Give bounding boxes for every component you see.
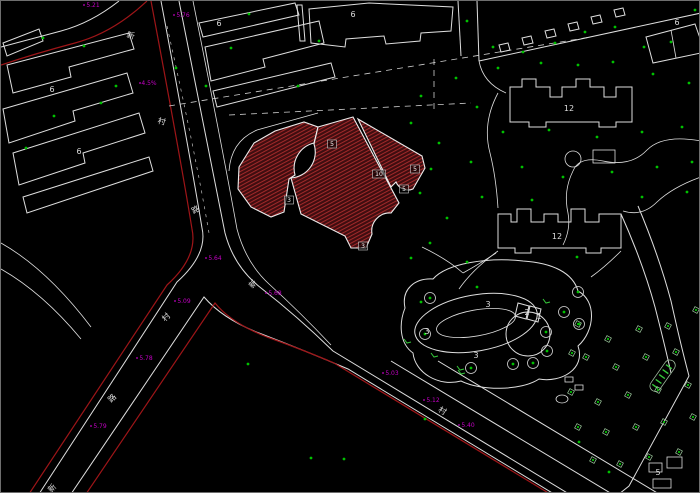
- plant-mark: [457, 366, 464, 370]
- building-row: [205, 21, 324, 81]
- building-row-notched: [309, 3, 453, 47]
- building-number: 6: [76, 147, 81, 156]
- tree-dot: [230, 47, 233, 50]
- tree-grid-symbols: [568, 307, 700, 468]
- tree-dot: [318, 40, 321, 43]
- elevation-label: 5.09: [177, 298, 191, 305]
- tree-dot: [545, 331, 548, 334]
- building-row: [3, 29, 43, 56]
- tree-dot: [678, 451, 680, 453]
- tree-dot: [410, 122, 413, 125]
- tree-dot: [577, 323, 579, 325]
- road-name-char: 村: [160, 311, 173, 324]
- tree-dot: [470, 161, 473, 164]
- shrub: [556, 395, 568, 403]
- footpath: [459, 251, 498, 289]
- block-boundary: [477, 1, 479, 61]
- tree-dot: [675, 351, 677, 353]
- building-divider: [671, 30, 676, 58]
- small-building: [591, 15, 602, 24]
- spot-elevation-dot: [90, 425, 92, 427]
- ring-road-curve: [638, 206, 689, 376]
- tree-dot: [492, 46, 495, 49]
- tree-dot: [205, 85, 208, 88]
- small-structure: [653, 479, 671, 488]
- tree-dot: [429, 242, 432, 245]
- footpath: [479, 61, 506, 93]
- tree-dot: [248, 13, 251, 16]
- tree-dot: [576, 256, 579, 259]
- tree-dot: [42, 37, 45, 40]
- building-cluster-north: [199, 3, 453, 107]
- tree-dot: [512, 363, 515, 366]
- building-12-south: [498, 209, 621, 253]
- tree-dot: [652, 73, 655, 76]
- footpath: [563, 171, 573, 245]
- tree-dot: [597, 401, 599, 403]
- tree-dot: [695, 309, 697, 311]
- tree-dot: [410, 257, 413, 260]
- tree-dot: [554, 42, 557, 45]
- boundary-dashed: [169, 37, 591, 106]
- tree-dot: [540, 62, 543, 65]
- tree-dot: [481, 196, 484, 199]
- tree-dot: [502, 131, 505, 134]
- tree-dot: [643, 46, 646, 49]
- site-number: 5: [402, 186, 406, 193]
- road-network: [1, 1, 659, 493]
- road-name-char: 新: [247, 278, 260, 291]
- tree-dot: [584, 31, 587, 34]
- tree-dot: [562, 176, 565, 179]
- elevation-label: 5.79: [93, 423, 107, 430]
- footpath: [591, 251, 621, 277]
- site-number: 3: [361, 243, 365, 250]
- tree-dot: [25, 147, 28, 150]
- tree-dot: [420, 301, 423, 304]
- tree-dot: [466, 20, 469, 23]
- tree-dot: [446, 217, 449, 220]
- elevation-label: 5.03: [385, 370, 399, 377]
- building-number: 1: [536, 312, 541, 321]
- tree-dot: [585, 356, 587, 358]
- elevation-label: 5.68: [268, 290, 282, 297]
- ring-road-curve: [621, 214, 671, 373]
- building-row: [3, 73, 133, 143]
- tree-dot: [577, 64, 580, 67]
- small-building: [568, 22, 579, 31]
- tree-dot: [470, 367, 473, 370]
- green-area-boundary: [619, 376, 689, 493]
- building-number: 6: [350, 10, 355, 19]
- tree-dot: [419, 192, 422, 195]
- building-number: 3: [473, 351, 478, 360]
- tree-dot: [476, 286, 479, 289]
- plant-mark: [543, 299, 550, 303]
- tree-dot: [614, 26, 617, 29]
- cad-site-plan-canvas[interactable]: 5105533 666661212333215 5.215.764.5%5.64…: [0, 0, 700, 493]
- footpath: [487, 93, 498, 208]
- tree-dot: [667, 325, 669, 327]
- tree-dot: [343, 458, 346, 461]
- tree-dot: [476, 106, 479, 109]
- tree-dot: [641, 131, 644, 134]
- boundary-dashed: [229, 103, 471, 115]
- elevation-label: 4.5%: [141, 80, 157, 87]
- tree-dot: [638, 328, 640, 330]
- road-red-line: [1, 1, 147, 65]
- elevation-label: 5.12: [426, 397, 440, 404]
- elevation-label: 5.40: [461, 422, 475, 429]
- tree-dot: [297, 85, 300, 88]
- building-number: 12: [552, 232, 562, 241]
- building-number: 3: [485, 300, 490, 309]
- ring-building-outer: [410, 285, 542, 362]
- spot-elevation-dot: [83, 4, 85, 6]
- tree-dot: [691, 161, 694, 164]
- tree-dot: [466, 261, 469, 264]
- building-number: 6: [216, 19, 221, 28]
- elevation-label: 5.21: [86, 2, 100, 9]
- building-number: 3: [424, 327, 429, 336]
- tree-dot: [455, 77, 458, 80]
- tree-dot: [424, 418, 427, 421]
- building-number: 6: [49, 85, 54, 94]
- tree-dot: [521, 166, 524, 169]
- spot-elevation-dot: [136, 357, 138, 359]
- tree-dot: [546, 350, 549, 353]
- tree-dot: [607, 338, 609, 340]
- green-planting-label: [648, 358, 678, 394]
- small-building: [614, 8, 625, 17]
- road-name-char: 新: [126, 29, 136, 41]
- tree-dot: [577, 291, 580, 294]
- tree-dot: [681, 126, 684, 129]
- road-name-char: 路: [106, 392, 119, 405]
- tree-dot: [570, 391, 572, 393]
- road-name-char: 新: [46, 482, 59, 493]
- small-building: [499, 43, 510, 52]
- tree-dot: [692, 416, 694, 418]
- tree-dot: [605, 431, 607, 433]
- round-pavilion: [565, 151, 581, 167]
- tree-dot: [310, 457, 313, 460]
- building-row: [23, 157, 153, 213]
- spot-elevation-dot: [174, 300, 176, 302]
- tree-dot: [686, 191, 689, 194]
- tree-dot: [687, 384, 689, 386]
- tree-dot: [247, 363, 250, 366]
- building-row: [213, 63, 335, 107]
- tree-dot: [571, 352, 573, 354]
- small-structure: [667, 457, 682, 468]
- plant-mark: [404, 339, 411, 343]
- highlighted-site-buildings: [229, 113, 425, 248]
- spot-elevation-dot: [205, 257, 207, 259]
- tree-dot: [100, 102, 103, 105]
- spot-elevation-dot: [265, 292, 267, 294]
- site-boundary: [401, 260, 591, 388]
- road-edge: [71, 297, 554, 493]
- site-number: 10: [375, 171, 383, 178]
- path-curve: [1, 243, 91, 327]
- tree-dot: [656, 166, 659, 169]
- tree-dot: [688, 82, 691, 85]
- tree-dot: [641, 196, 644, 199]
- building-12-north: [510, 79, 632, 127]
- spot-elevation-dot: [382, 372, 384, 374]
- block-boundary: [479, 13, 700, 61]
- tree-dot: [53, 115, 56, 118]
- ring-building-inner: [434, 303, 517, 342]
- small-building: [545, 29, 556, 38]
- footpath: [623, 177, 700, 213]
- tree-dot: [430, 168, 433, 171]
- road-red-line: [29, 1, 193, 493]
- tree-dot: [563, 311, 566, 314]
- elevation-label: 5.78: [139, 355, 153, 362]
- elevation-label: 5.64: [208, 255, 222, 262]
- circle-trees: [420, 287, 585, 374]
- tree-dot: [663, 421, 665, 423]
- building-slanted: [646, 24, 700, 63]
- tree-dot: [615, 366, 617, 368]
- tree-dot: [694, 9, 697, 12]
- site-number: 5: [413, 166, 417, 173]
- road-edge: [179, 1, 569, 493]
- spot-elevation-dot: [458, 424, 460, 426]
- tree-dot: [657, 389, 659, 391]
- building-row: [199, 3, 299, 37]
- tree-dot: [115, 85, 118, 88]
- footpath: [573, 139, 700, 171]
- bench: [565, 377, 573, 382]
- site-number: 3: [287, 197, 291, 204]
- tree-dot: [429, 297, 432, 300]
- elevation-labels: 5.215.764.5%5.645.685.095.785.795.035.12…: [83, 2, 475, 430]
- tree-dot: [608, 471, 611, 474]
- building-number: 5: [655, 468, 660, 477]
- spot-elevation-dot: [173, 14, 175, 16]
- spot-elevation-dot: [423, 399, 425, 401]
- tree-dot: [522, 51, 525, 54]
- tree-dot: [420, 95, 423, 98]
- road-name-char: 村: [157, 115, 167, 127]
- tree-dot: [645, 356, 647, 358]
- tree-dot: [175, 67, 178, 70]
- tree-dot: [531, 199, 534, 202]
- tree-dot: [611, 171, 614, 174]
- tree-dot: [670, 41, 673, 44]
- tree-dot: [627, 394, 629, 396]
- tree-dot: [577, 426, 579, 428]
- tree-dot: [596, 136, 599, 139]
- tree-dot: [438, 142, 441, 145]
- tree-dot: [612, 61, 615, 64]
- path-curve: [1, 269, 81, 339]
- elevation-label: 5.76: [176, 12, 190, 19]
- tree-dot: [548, 129, 551, 132]
- tree-dot: [592, 459, 594, 461]
- building-strip: [297, 5, 305, 41]
- tree-dot: [619, 463, 621, 465]
- building-number: 6: [674, 18, 679, 27]
- plant-mark: [431, 353, 438, 357]
- tree-dot: [578, 441, 581, 444]
- tree-dot: [648, 456, 650, 458]
- building-row: [7, 33, 134, 93]
- bench: [575, 385, 583, 390]
- footpath: [422, 247, 463, 273]
- tree-dot: [497, 67, 500, 70]
- building-number: 12: [564, 104, 574, 113]
- tree-dot: [83, 45, 86, 48]
- site-number: 5: [330, 141, 334, 148]
- round-building: [506, 312, 550, 356]
- tree-dot: [532, 362, 535, 365]
- tree-dot: [635, 426, 637, 428]
- small-building: [522, 36, 533, 45]
- building-number: 2: [524, 308, 529, 317]
- block-boundary: [458, 1, 461, 56]
- site-plan-drawing[interactable]: 5105533 666661212333215 5.215.764.5%5.64…: [1, 1, 700, 493]
